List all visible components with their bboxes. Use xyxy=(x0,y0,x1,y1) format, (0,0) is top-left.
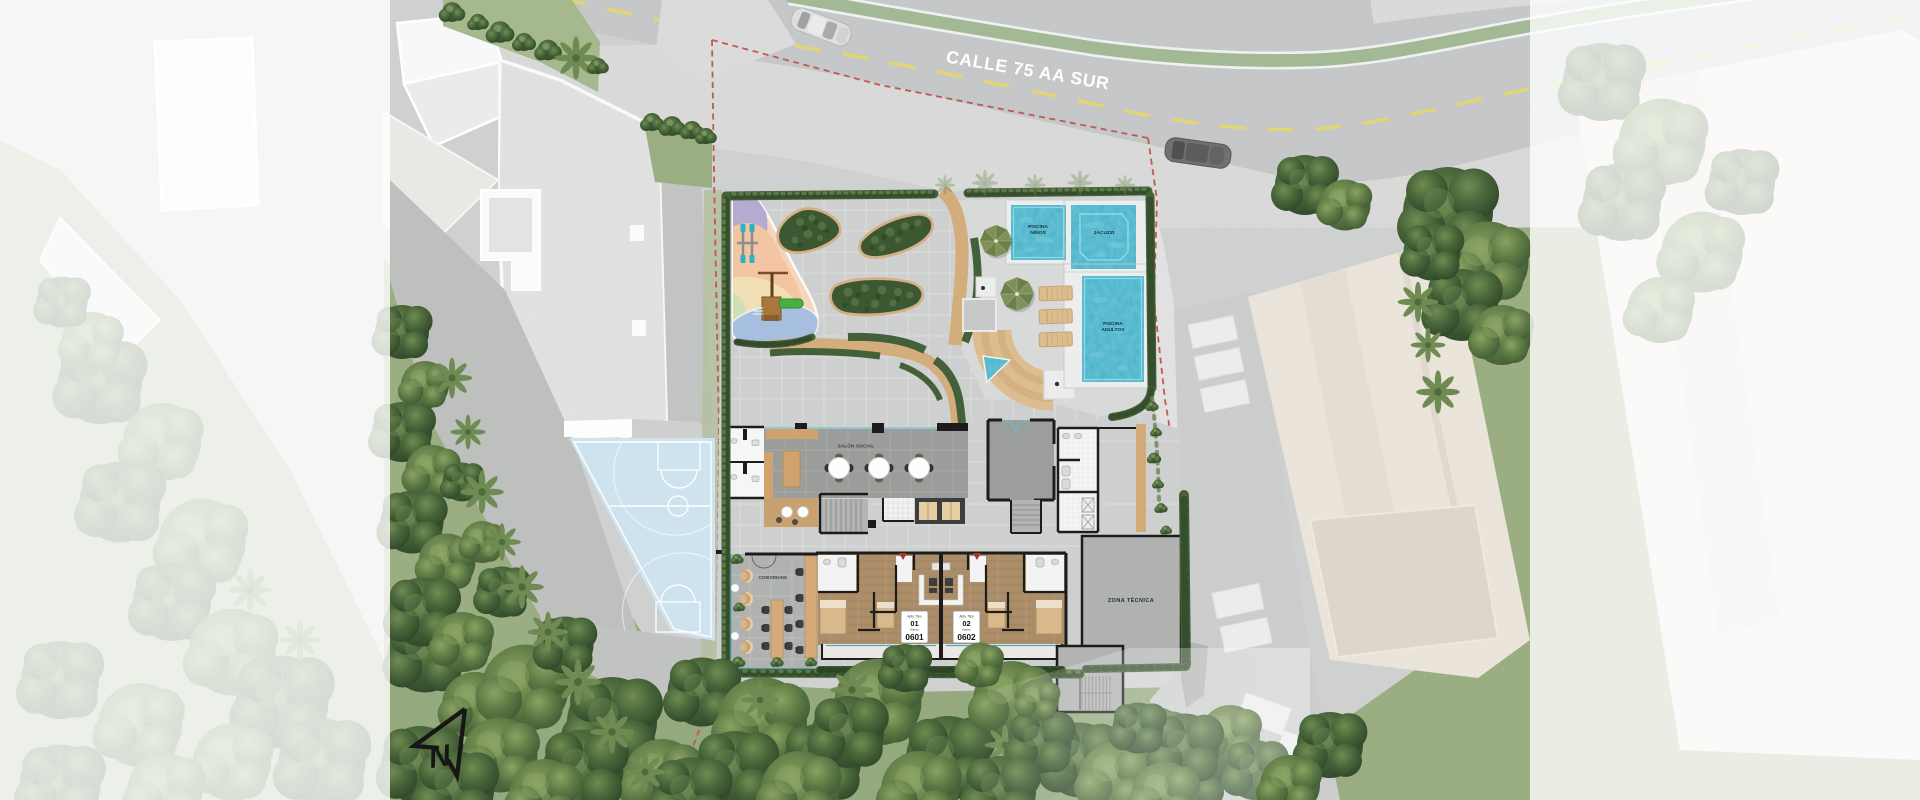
svg-text:COWORKING: COWORKING xyxy=(759,575,788,580)
svg-text:Apto. Tipo: Apto. Tipo xyxy=(907,615,922,619)
svg-text:0601: 0601 xyxy=(905,633,924,642)
svg-text:Atípico: Atípico xyxy=(910,628,919,632)
svg-text:PISCINA: PISCINA xyxy=(1103,321,1123,327)
svg-text:NIÑOS: NIÑOS xyxy=(1030,229,1046,236)
svg-text:ADULTOS: ADULTOS xyxy=(1101,327,1125,333)
svg-text:Atípico: Atípico xyxy=(962,628,971,632)
svg-text:0602: 0602 xyxy=(957,633,976,642)
svg-text:Apto. Tipo: Apto. Tipo xyxy=(959,615,974,619)
svg-text:ZONA TÉCNICA: ZONA TÉCNICA xyxy=(1108,596,1154,604)
svg-text:PISCINA: PISCINA xyxy=(1028,224,1048,230)
svg-text:JACUZZI: JACUZZI xyxy=(1094,230,1115,236)
svg-text:SALÓN SOCIAL: SALÓN SOCIAL xyxy=(838,444,875,449)
